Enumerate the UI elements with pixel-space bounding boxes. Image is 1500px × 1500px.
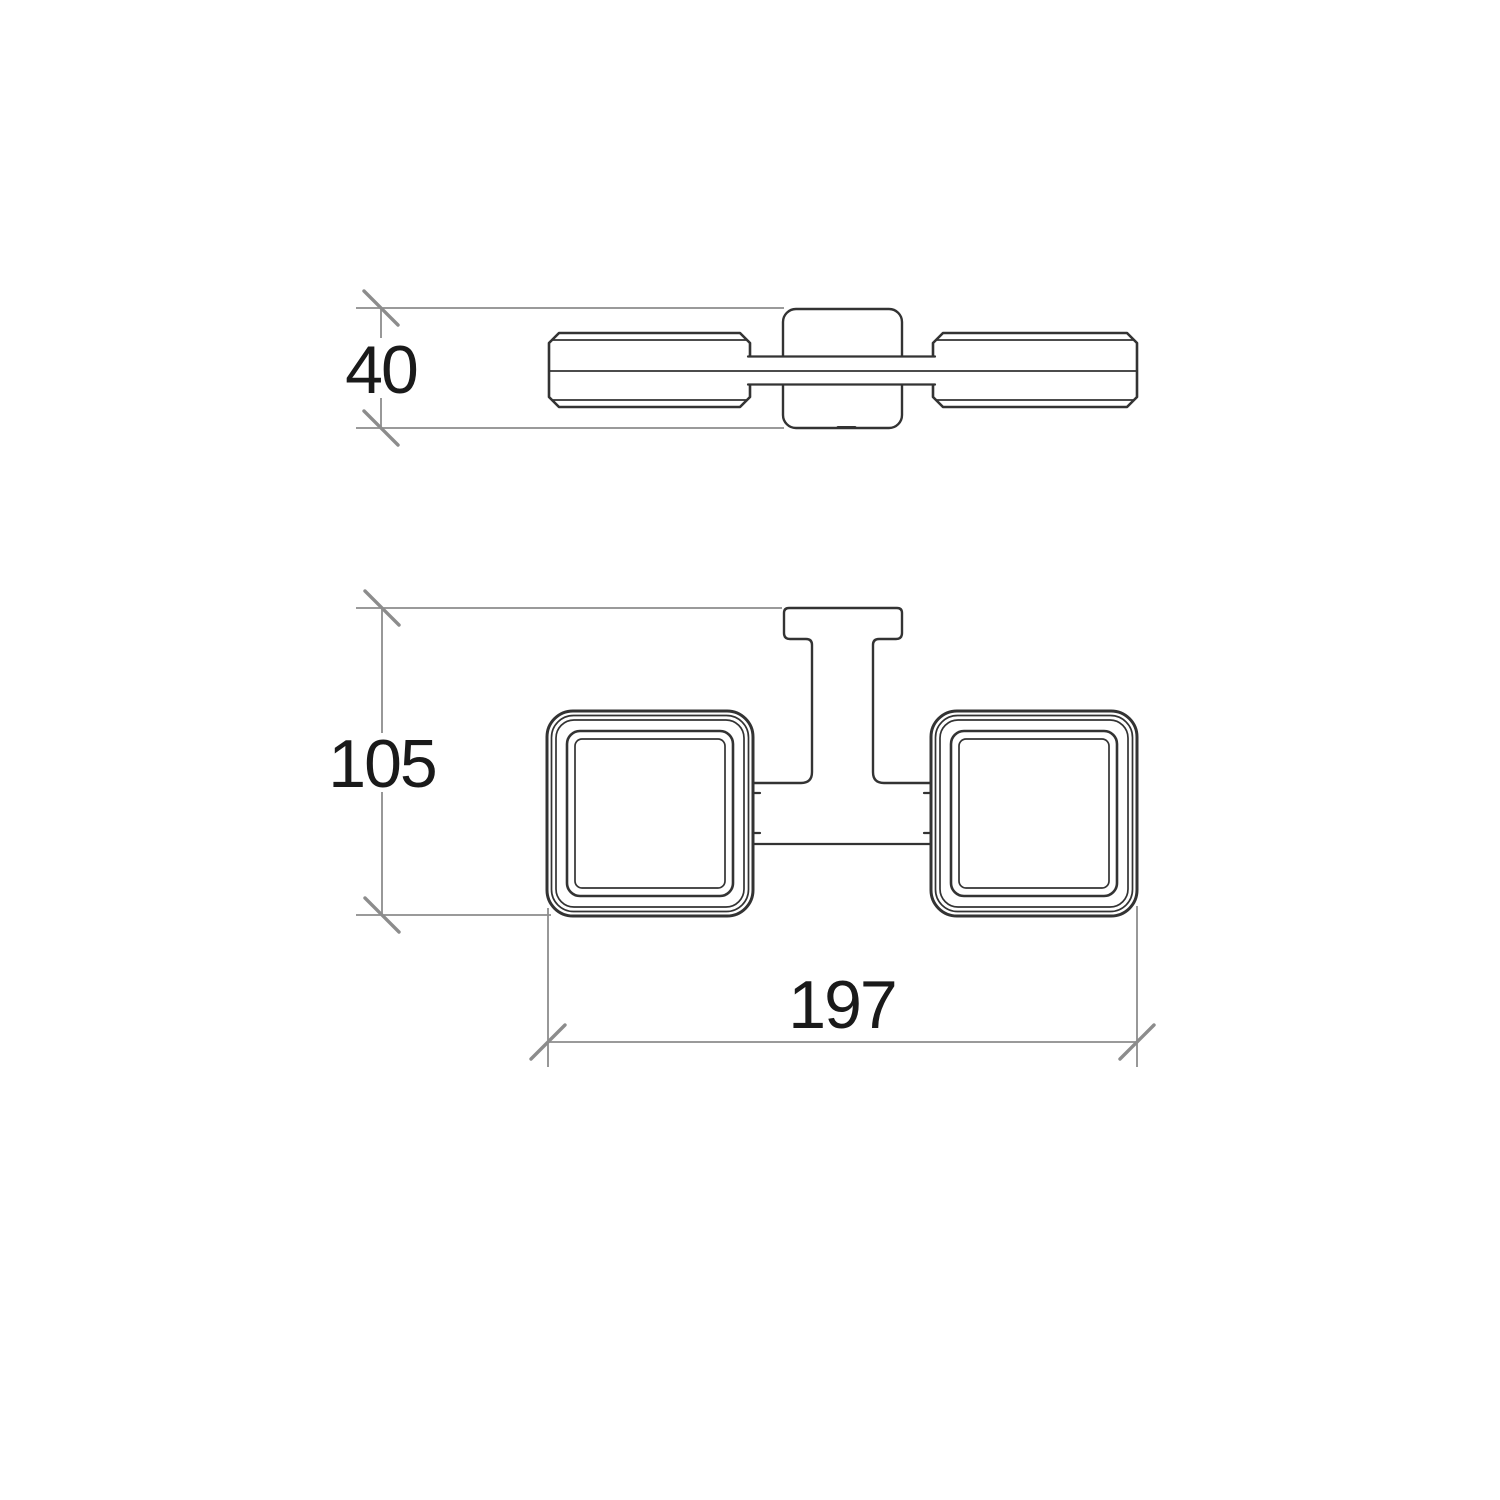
right-knob-outline [933,333,1137,407]
front-view [547,608,1137,916]
technical-drawing: 40 105 197 [0,0,1500,1500]
drawing-canvas: 40 105 197 [0,0,1500,1500]
left-holder-front [547,711,753,916]
wall-bracket-outline [748,608,936,783]
left-holder-outer-ring [547,711,753,916]
bar-junction-ticks [753,793,931,833]
dimension-label-105: 105 [328,726,435,802]
right-holder-front [931,711,1137,916]
right-knob-top [933,333,1137,407]
dimension-197: 197 [531,906,1154,1067]
dimension-label-197: 197 [788,967,895,1043]
top-view [549,309,1137,428]
right-holder-outer-ring [931,711,1137,916]
left-knob-top [549,333,750,407]
dimension-label-40: 40 [345,332,417,408]
left-knob-outline [549,333,750,407]
